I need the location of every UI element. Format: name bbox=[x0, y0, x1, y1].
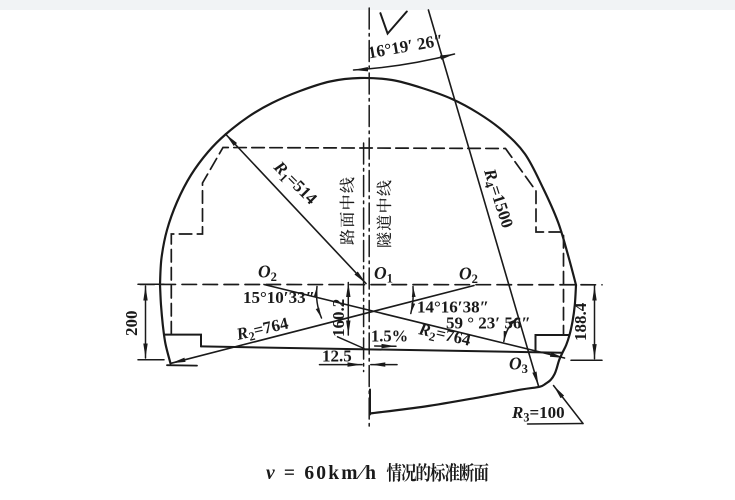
svg-text:15°10′33″: 15°10′33″ bbox=[243, 288, 315, 307]
svg-text:O2: O2 bbox=[258, 262, 277, 285]
svg-text:R3=100: R3=100 bbox=[511, 403, 565, 425]
svg-text:188.4: 188.4 bbox=[571, 302, 590, 341]
svg-text:1.5%: 1.5% bbox=[371, 327, 408, 346]
svg-text:16°19′ 26″: 16°19′ 26″ bbox=[366, 30, 444, 62]
svg-text:O1: O1 bbox=[374, 263, 393, 286]
svg-text:O3: O3 bbox=[509, 354, 528, 377]
svg-text:12.5: 12.5 bbox=[322, 347, 352, 366]
svg-text:R2=764: R2=764 bbox=[234, 313, 292, 346]
svg-text:v = 60km∕h: v = 60km∕h bbox=[266, 463, 378, 484]
svg-text:200: 200 bbox=[122, 311, 141, 337]
svg-text:O2: O2 bbox=[459, 264, 478, 287]
svg-text:R1=514: R1=514 bbox=[268, 157, 321, 210]
svg-text:59 ° 23′ 56″: 59 ° 23′ 56″ bbox=[446, 314, 531, 333]
svg-text:160.2: 160.2 bbox=[329, 299, 348, 337]
